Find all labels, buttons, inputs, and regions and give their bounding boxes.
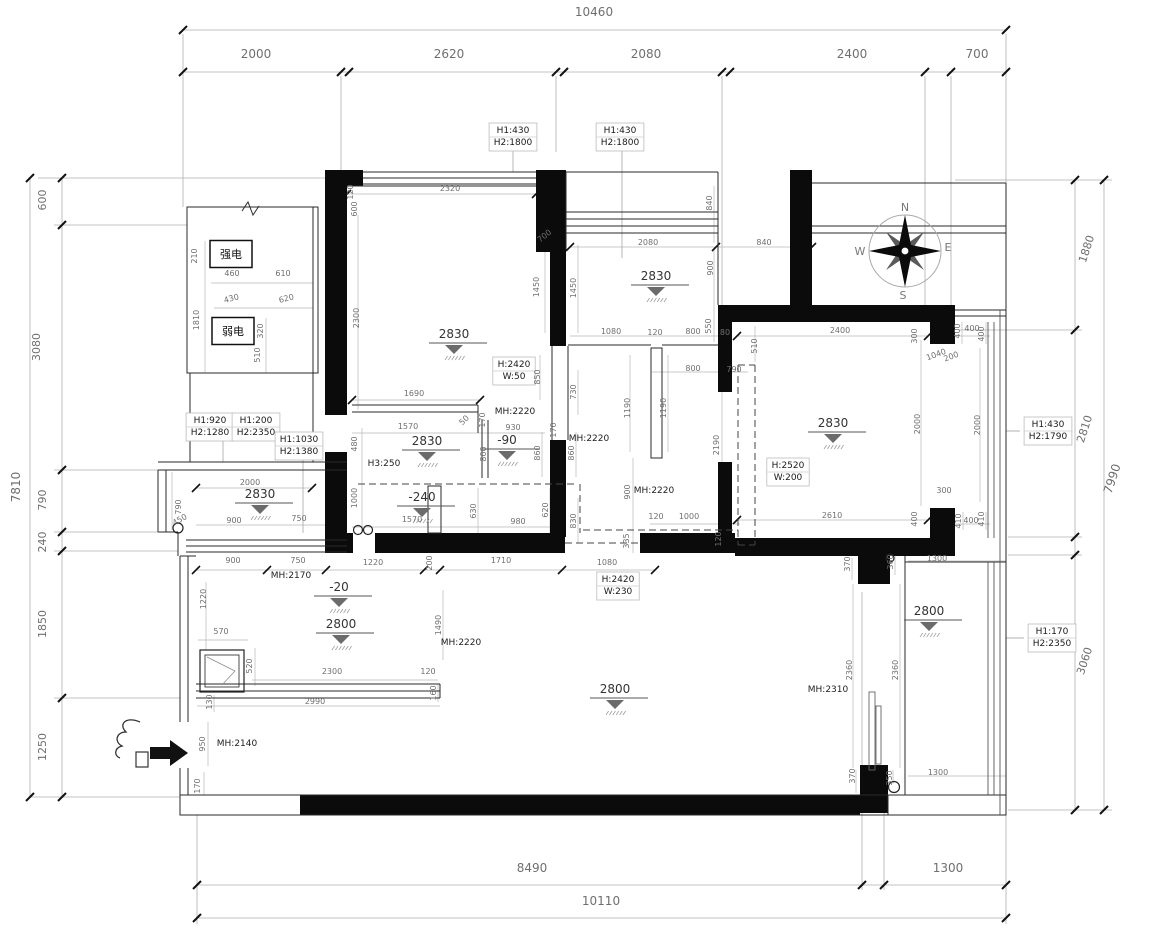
dim-label: 50 (457, 413, 471, 427)
dim-label: 1490 (434, 615, 443, 635)
boxed-label-text: H1:170 (1036, 627, 1069, 637)
dim-label: MH:2220 (441, 638, 482, 648)
elevation-marker: 2830 (235, 487, 293, 520)
dim-label: 790 (726, 365, 741, 374)
dim-label: 2000 (973, 415, 982, 435)
dim-label: 950 (198, 736, 207, 751)
dim-label: 1710 (491, 556, 511, 565)
elevation-value: 2830 (245, 487, 276, 501)
dim-label: 2000 (241, 47, 272, 61)
dim-label: 120 (647, 328, 662, 337)
dim-label: 600 (350, 201, 359, 216)
dim-label: 1570 (402, 515, 422, 524)
dim-label: 1190 (623, 398, 632, 418)
dim-label: 2190 (712, 435, 721, 455)
boxed-label-text: H1:920 (194, 416, 227, 426)
boxed-label-text: H:2420 (498, 360, 531, 370)
dim-label: 2080 (631, 47, 662, 61)
compass-e: E (945, 241, 952, 254)
dim-label: 1080 (597, 558, 617, 567)
compass-w: W (855, 245, 866, 258)
boxed-label-text: H1:430 (604, 126, 637, 136)
boxed-label-text: H2:2350 (1033, 639, 1072, 649)
dim-label: 900 (706, 260, 715, 275)
dim-label: 120 (420, 667, 435, 676)
dim-label: 700 (966, 47, 989, 61)
dim-label: 300 (910, 328, 919, 343)
dim-label: 2000 (240, 478, 260, 487)
boxed-label-text: H1:430 (1032, 420, 1065, 430)
dim-label: 1450 (569, 278, 578, 298)
dim-label: 460 (224, 269, 239, 278)
dim-label: 170 (478, 412, 487, 427)
dim-label: 370 (843, 556, 852, 571)
boxed-label: H:2420W:230 (597, 572, 639, 600)
dim-label: 1810 (192, 310, 201, 330)
dim-label: 830 (569, 513, 578, 528)
entry-arrow-icon (150, 740, 188, 766)
boxed-label-text: H2:1280 (191, 428, 230, 438)
boxed-labels: H1:430H2:1800H1:430H2:1800H1:920H2:1280H… (186, 123, 1076, 652)
dim-label: 2000 (913, 414, 922, 434)
boxed-label-text: W:50 (503, 372, 526, 382)
dim-label: MH:2140 (217, 739, 258, 749)
boxed-label-text: H1:200 (240, 416, 273, 426)
elevation-value: 2830 (818, 416, 849, 430)
dim-label: 2400 (830, 326, 850, 335)
floor-drain-icon (200, 650, 244, 692)
dim-label: 900 (225, 556, 240, 565)
elevation-value: -240 (408, 490, 435, 504)
dim-label: 120 (346, 184, 355, 199)
dim-label: 750 (290, 556, 305, 565)
elevation-marker: 2830 (429, 327, 487, 360)
dim-label: 550 (704, 318, 713, 333)
dim-label: 1570 (398, 422, 418, 431)
dim-label: 1220 (363, 558, 383, 567)
dim-label: 335 (622, 533, 631, 548)
dim-label: 800 (685, 327, 700, 336)
compass-s: S (900, 289, 907, 302)
dim-label: 930 (505, 423, 520, 432)
dim-label: 2080 (638, 238, 658, 247)
dim-label: 210 (190, 248, 199, 263)
dim-label: 1450 (532, 277, 541, 297)
boxed-label: H1:1030H2:1380 (275, 432, 323, 460)
dim-label: MH:2220 (634, 486, 675, 496)
dim-label: 1000 (350, 488, 359, 508)
dim-label: 320 (256, 323, 265, 338)
boxed-label: H1:200H2:2350 (232, 413, 280, 441)
dim-label: 620 (278, 292, 295, 305)
dim-label: 520 (245, 658, 254, 673)
boxed-label: H1:430H2:1800 (489, 123, 537, 151)
dim-label: 980 (510, 517, 525, 526)
dim-label: 570 (213, 627, 228, 636)
dim-label: 2360 (891, 660, 900, 680)
dim-label: 840 (705, 195, 714, 210)
dim-label: 430 (223, 292, 240, 305)
dim-label: 1300 (927, 554, 947, 563)
boxed-label: H:2520W:200 (767, 458, 809, 486)
dim-label: 350 (885, 770, 894, 785)
dim-label: 510 (253, 347, 262, 362)
dimension-labels: 1046020002620208024007007810600308079024… (9, 5, 1124, 908)
dim-label: 1300 (933, 861, 964, 875)
dim-label: 900 (623, 484, 632, 499)
elevation-value: -20 (329, 580, 349, 594)
dim-label: 2360 (845, 660, 854, 680)
dim-label: 730 (569, 384, 578, 399)
dim-label: 400 (910, 511, 919, 526)
dim-label: 800 (479, 446, 488, 461)
dim-label: 900 (226, 516, 241, 525)
dim-label: 240 (36, 532, 49, 553)
elevation-value: 2800 (600, 682, 631, 696)
dim-label: 1880 (1076, 234, 1097, 265)
dim-label: 200 (425, 555, 434, 570)
boxed-label-text: H:2420 (602, 575, 635, 585)
electric-boxes: 强电弱电 (210, 241, 254, 345)
dim-label: 1250 (36, 733, 49, 761)
dim-label: 8490 (517, 861, 548, 875)
riser-pipe-icon (869, 692, 875, 770)
dim-label: 2300 (352, 308, 361, 328)
boxed-label-text: H2:1790 (1029, 432, 1068, 442)
dim-label: 170 (549, 422, 558, 437)
dim-label: 400 (953, 323, 962, 338)
dim-label: 160 (429, 685, 438, 700)
dim-label: 800 (685, 364, 700, 373)
electric-box-label: 弱电 (222, 325, 244, 338)
dim-label: 630 (469, 503, 478, 518)
boxed-label: H1:170H2:2350 (1028, 624, 1076, 652)
boxed-label-text: H2:2350 (237, 428, 276, 438)
elevation-value: 2830 (412, 434, 443, 448)
boxed-label: H1:430H2:1800 (596, 123, 644, 151)
floor-plan-drawing: N S W E 28302830283028302830-90-240-2028… (0, 0, 1150, 943)
elevation-value: 2800 (326, 617, 357, 631)
dim-label: 2810 (1074, 414, 1095, 445)
dim-label: 860 (533, 445, 542, 460)
elevation-marker: 2830 (808, 416, 866, 449)
dim-label: 480 (350, 436, 359, 451)
dim-label: 1220 (199, 589, 208, 609)
elevation-value: 2830 (641, 269, 672, 283)
dim-label: 2610 (822, 511, 842, 520)
boxed-label: H:2420W:50 (493, 357, 535, 385)
entry-symbol (116, 720, 188, 767)
boxed-label-text: H:2520 (772, 461, 805, 471)
boxed-label-text: H2:1800 (601, 138, 640, 148)
dim-label: 600 (36, 190, 49, 211)
dim-label: 1000 (679, 512, 699, 521)
dim-label: 1190 (659, 398, 668, 418)
elevation-marker: 2830 (402, 434, 460, 467)
elevation-marker: -20 (314, 580, 372, 613)
dim-label: 2400 (837, 47, 868, 61)
dim-label: 510 (750, 338, 759, 353)
dim-label: 2990 (305, 697, 325, 706)
dim-label: 1850 (36, 610, 49, 638)
dim-label: 3080 (30, 333, 43, 361)
dim-label: 850 (533, 369, 542, 384)
dim-label: 130 (205, 694, 214, 709)
boxed-label: H1:920H2:1280 (186, 413, 234, 441)
dim-label: 610 (275, 269, 290, 278)
dim-label: 410 (977, 511, 986, 526)
dim-label: 360 (886, 554, 895, 569)
dim-label: 840 (756, 238, 771, 247)
boxed-label-text: W:200 (774, 473, 803, 483)
dim-label: 620 (541, 502, 550, 517)
dim-label: 370 (848, 768, 857, 783)
dim-label: 750 (291, 514, 306, 523)
compass-rose: N S W E (855, 201, 952, 302)
boxed-label-text: H1:430 (497, 126, 530, 136)
dim-label: MH:2220 (569, 434, 610, 444)
dim-label: 1300 (928, 768, 948, 777)
electric-box-label: 强电 (220, 248, 242, 261)
dim-label: 170 (193, 778, 202, 793)
elevation-value: 2800 (914, 604, 945, 618)
elevation-value: -90 (497, 433, 517, 447)
dim-label: 860 (567, 445, 576, 460)
dim-label: 2300 (322, 667, 342, 676)
dim-label: 2620 (434, 47, 465, 61)
boxed-label-text: W:230 (604, 587, 633, 597)
elevation-marker: 2800 (904, 604, 962, 637)
dim-label: 10110 (582, 894, 620, 908)
boxed-label: H1:430H2:1790 (1024, 417, 1072, 445)
dim-label: 2320 (440, 184, 460, 193)
electric-box: 弱电 (212, 318, 254, 345)
dim-label: 790 (174, 499, 183, 514)
boxed-label-text: H1:1030 (280, 435, 319, 445)
dim-label: MH:2170 (271, 571, 312, 581)
dim-label: MH:2220 (495, 407, 536, 417)
dim-label: 410 (954, 513, 963, 528)
dim-label: 1080 (601, 327, 621, 336)
dim-label: 300 (936, 486, 951, 495)
floor-plan-page: N S W E 28302830283028302830-90-240-2028… (0, 0, 1150, 943)
dim-label: 120 (714, 531, 723, 546)
dim-label: H3:250 (368, 459, 401, 469)
dim-label: 120 (648, 512, 663, 521)
fixtures (173, 523, 900, 793)
dim-label: 10460 (575, 5, 613, 19)
dim-label: 80 (720, 328, 730, 337)
dim-label: MH:2310 (808, 685, 849, 695)
elevation-marker: -90 (482, 433, 540, 466)
elevation-value: 2830 (439, 327, 470, 341)
dim-label: 400 (977, 326, 986, 341)
electric-box: 强电 (210, 241, 252, 268)
elevation-marker: 2800 (316, 617, 374, 650)
dim-label: 7810 (9, 472, 23, 503)
dim-label: 790 (36, 490, 49, 511)
boxed-label-text: H2:1800 (494, 138, 533, 148)
elevation-marker: 2800 (590, 682, 648, 715)
compass-n: N (901, 201, 909, 214)
boxed-label-text: H2:1380 (280, 447, 319, 457)
dim-label: 1690 (404, 389, 424, 398)
elevation-marker: 2830 (631, 269, 689, 302)
dim-label: 3060 (1074, 646, 1095, 677)
